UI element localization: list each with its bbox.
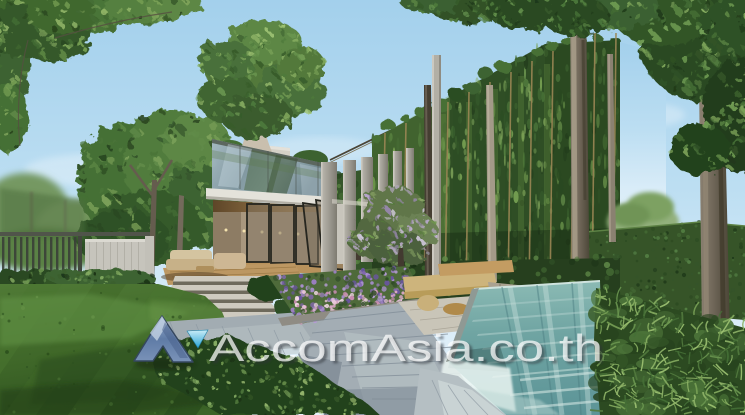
- svg-text:AccomAsia.co.th: AccomAsia.co.th: [209, 328, 603, 370]
